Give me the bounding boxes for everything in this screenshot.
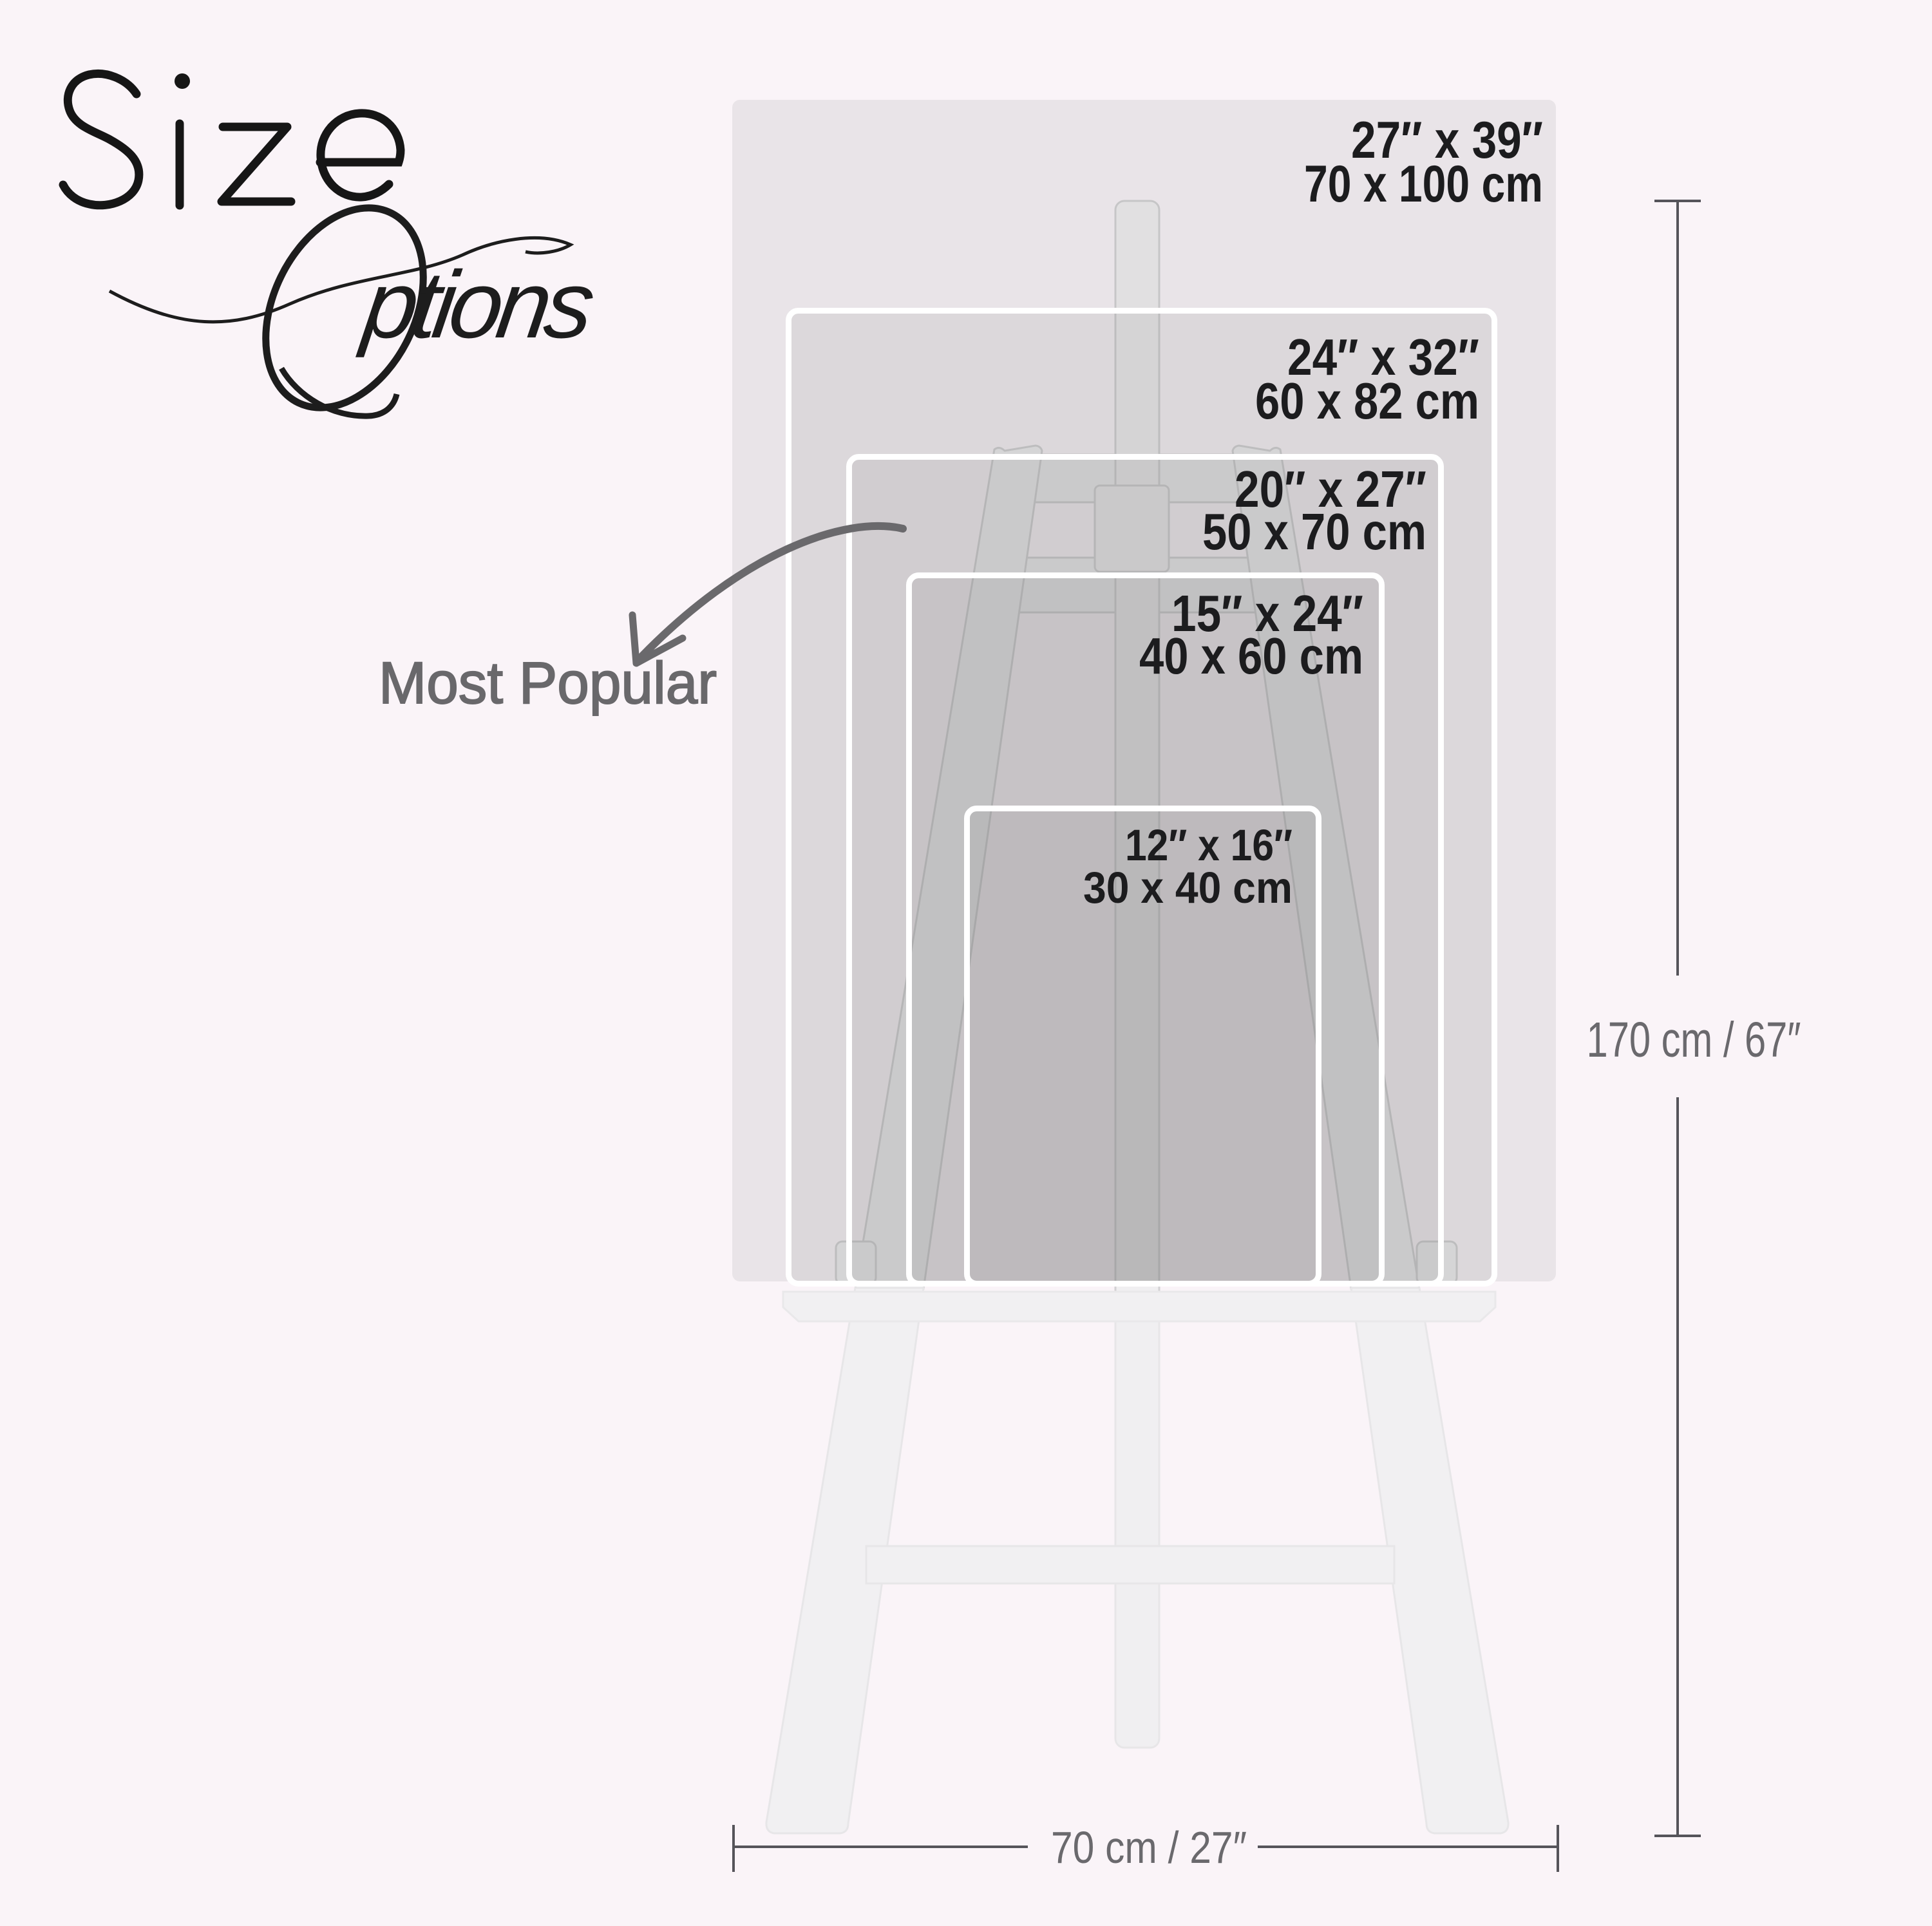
svg-text:40 x 60 cm: 40 x 60 cm bbox=[1139, 627, 1363, 684]
svg-text:50 x 70 cm: 50 x 70 cm bbox=[1202, 503, 1426, 560]
svg-text:170 cm / 67″: 170 cm / 67″ bbox=[1587, 1012, 1801, 1068]
svg-text:Most Popular: Most Popular bbox=[379, 650, 717, 716]
svg-text:30 x 40 cm: 30 x 40 cm bbox=[1083, 863, 1293, 912]
svg-text:70 cm / 27″: 70 cm / 27″ bbox=[1051, 1822, 1247, 1873]
svg-text:70 x 100 cm: 70 x 100 cm bbox=[1304, 155, 1543, 213]
svg-text:60 x 82 cm: 60 x 82 cm bbox=[1255, 372, 1479, 430]
svg-text:ptions: ptions bbox=[355, 251, 600, 358]
